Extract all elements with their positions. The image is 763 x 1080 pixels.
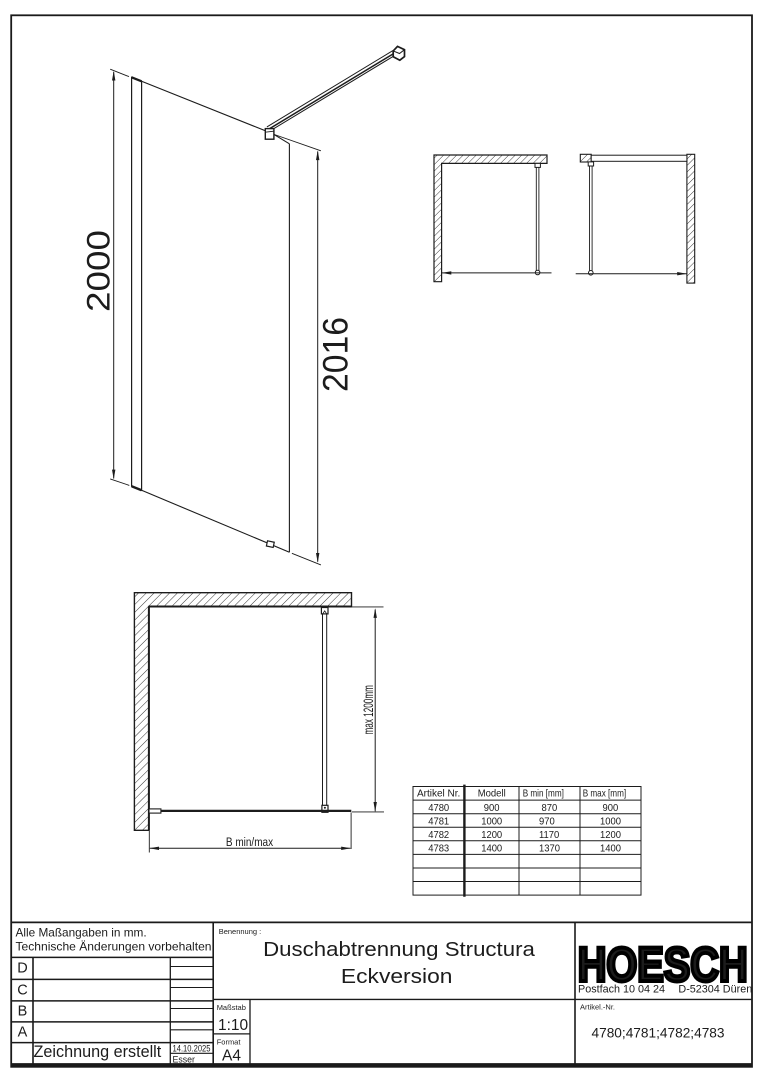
svg-text:Benennung :: Benennung : [219,927,262,936]
svg-text:C: C [17,982,27,998]
svg-text:870: 870 [542,802,558,814]
svg-text:14.10.2025: 14.10.2025 [173,1043,211,1053]
svg-text:1400: 1400 [481,843,502,855]
svg-text:4783: 4783 [428,843,449,855]
svg-text:1000: 1000 [600,816,621,828]
svg-text:2000: 2000 [81,230,117,312]
svg-text:900: 900 [484,802,500,814]
svg-text:4781: 4781 [428,816,449,828]
svg-text:Modell: Modell [478,788,506,799]
svg-text:4780: 4780 [428,802,449,814]
svg-text:Eckversion: Eckversion [341,965,453,988]
svg-text:Technische Änderungen vorbehal: Technische Änderungen vorbehalten [16,940,212,954]
svg-text:Artikel Nr.: Artikel Nr. [417,789,460,800]
svg-text:Esser: Esser [173,1054,196,1064]
svg-text:Postfach 10 04 24: Postfach 10 04 24 [578,983,665,995]
svg-text:900: 900 [603,802,619,814]
svg-text:max 1200mm: max 1200mm [362,685,377,734]
svg-text:2016: 2016 [317,317,356,392]
svg-text:Alle Maßangaben in mm.: Alle Maßangaben in mm. [16,926,147,940]
svg-text:1200: 1200 [600,829,621,841]
svg-text:4782: 4782 [428,829,449,841]
svg-text:4780;4781;4782;4783: 4780;4781;4782;4783 [592,1025,725,1041]
svg-text:1400: 1400 [600,843,621,855]
svg-text:B: B [18,1004,28,1020]
svg-text:D: D [17,961,27,977]
svg-text:Format: Format [217,1038,242,1047]
svg-text:A4: A4 [222,1048,241,1065]
svg-text:A: A [18,1025,28,1041]
svg-text:1000: 1000 [481,816,502,828]
svg-text:970: 970 [539,816,555,828]
svg-text:1370: 1370 [539,843,560,855]
svg-text:D-52304 Düren: D-52304 Düren [678,983,752,995]
svg-text:1170: 1170 [539,829,560,841]
svg-text:Artikel.-Nr.: Artikel.-Nr. [580,1003,615,1012]
svg-text:B max [mm]: B max [mm] [583,788,626,799]
svg-text:Zeichnung erstellt: Zeichnung erstellt [34,1043,162,1061]
svg-text:Maßstab: Maßstab [217,1003,246,1012]
svg-text:Duschabtrennung Structura: Duschabtrennung Structura [263,938,535,961]
svg-text:1200: 1200 [481,829,502,841]
svg-text:1:10: 1:10 [218,1017,249,1034]
svg-text:B min/max: B min/max [226,836,274,849]
svg-text:B min [mm]: B min [mm] [523,788,564,799]
